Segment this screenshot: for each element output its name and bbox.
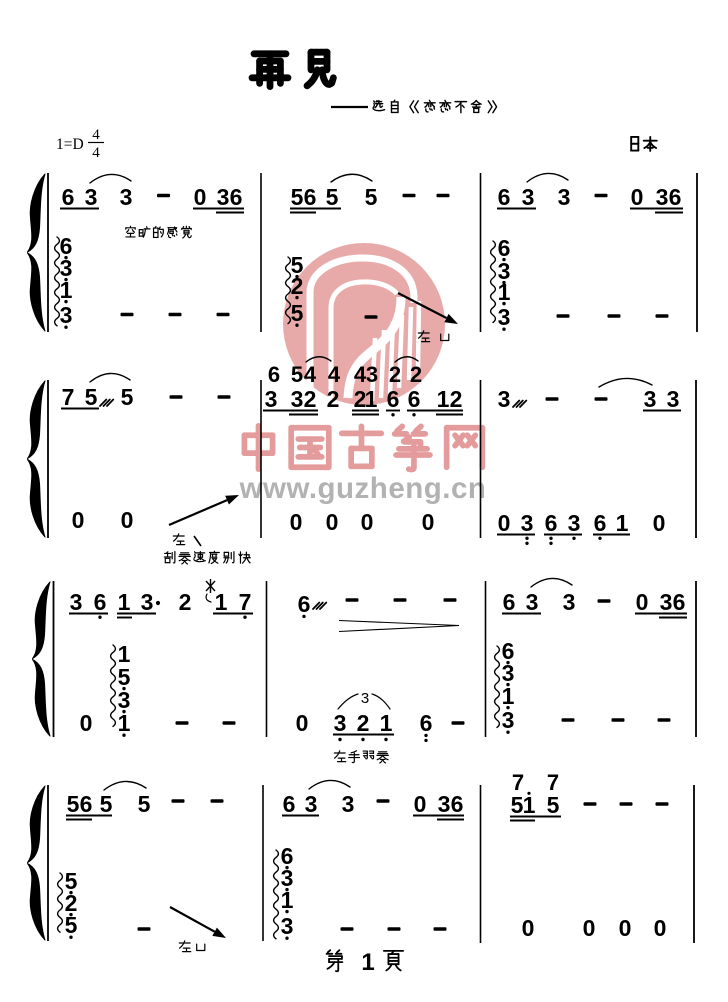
svg-text:3: 3 [141,589,154,615]
svg-text:6: 6 [673,589,686,615]
svg-text:3: 3 [660,589,673,615]
svg-text:5: 5 [67,791,80,817]
svg-text:6: 6 [298,591,311,617]
svg-text:0: 0 [422,509,435,535]
svg-text:0: 0 [72,507,85,533]
svg-text:1: 1 [502,683,515,709]
svg-text:3: 3 [120,184,133,210]
svg-text:3: 3 [644,386,657,412]
svg-text:3: 3 [521,510,534,536]
svg-text:0: 0 [583,915,596,941]
svg-text:3: 3 [563,589,576,615]
svg-text:5: 5 [121,384,134,410]
svg-text:1: 1 [437,386,450,412]
svg-text:1: 1 [616,510,629,536]
svg-text:1: 1 [60,277,73,303]
svg-text:0: 0 [361,509,374,535]
svg-text:0: 0 [194,184,207,210]
svg-text:5: 5 [291,184,304,210]
svg-text:2: 2 [357,710,370,736]
svg-text:3: 3 [498,386,511,412]
svg-text:1: 1 [523,792,536,818]
svg-text:3: 3 [568,510,581,536]
svg-text:3: 3 [305,791,318,817]
svg-text:5: 5 [365,184,378,210]
svg-text:5: 5 [85,384,98,410]
svg-text:6: 6 [387,386,400,412]
svg-text:6: 6 [594,510,607,536]
svg-text:5: 5 [138,791,151,817]
svg-text:0: 0 [414,791,427,817]
svg-text:6: 6 [283,791,296,817]
svg-text:4: 4 [92,145,100,161]
svg-text:5: 5 [547,792,560,818]
svg-text:6: 6 [503,589,516,615]
svg-text:3: 3 [438,791,451,817]
svg-text:5: 5 [291,362,303,387]
svg-text:1: 1 [281,887,294,913]
svg-text:3: 3 [558,184,571,210]
svg-text:0: 0 [619,915,632,941]
svg-text:3: 3 [366,362,378,387]
svg-text:5: 5 [291,300,304,326]
svg-text:1=D: 1=D [56,136,84,153]
svg-text:2: 2 [410,362,422,387]
svg-text:www.guzheng.cn: www.guzheng.cn [239,472,487,505]
svg-text:3: 3 [342,791,355,817]
svg-text:3: 3 [526,589,539,615]
svg-text:4: 4 [92,127,100,143]
svg-text:6: 6 [451,791,464,817]
svg-text:3: 3 [265,386,278,412]
svg-text:3: 3 [667,386,680,412]
svg-text:6: 6 [420,710,433,736]
svg-text:2: 2 [450,386,463,412]
svg-text:1: 1 [118,710,131,736]
svg-text:6: 6 [669,184,682,210]
svg-text:0: 0 [80,710,93,736]
svg-text:3: 3 [502,707,515,733]
svg-text:0: 0 [498,510,511,536]
svg-text:4: 4 [328,362,341,387]
svg-text:5: 5 [100,791,113,817]
svg-text:3: 3 [85,184,98,210]
svg-text:3: 3 [291,386,304,412]
svg-text:1: 1 [498,279,511,305]
svg-text:2: 2 [291,273,304,299]
svg-text:5: 5 [326,184,339,210]
svg-text:3: 3 [281,913,294,939]
svg-text:1: 1 [380,710,393,736]
svg-text:3: 3 [361,690,369,707]
svg-text:0: 0 [653,510,666,536]
svg-text:2: 2 [304,386,317,412]
svg-text:6: 6 [80,791,93,817]
svg-text:6: 6 [545,510,558,536]
svg-text:0: 0 [121,507,134,533]
svg-text:6: 6 [304,184,317,210]
svg-text:3: 3 [70,589,83,615]
svg-text:7: 7 [62,384,75,410]
svg-text:5: 5 [65,912,78,938]
svg-text:0: 0 [326,509,339,535]
svg-text:6: 6 [230,184,243,210]
svg-text:6: 6 [62,184,75,210]
svg-text:7: 7 [239,589,252,615]
svg-text:0: 0 [654,915,667,941]
svg-text:3: 3 [60,302,73,328]
svg-text:1: 1 [361,949,374,976]
svg-text:1: 1 [215,589,228,615]
svg-text:6: 6 [268,362,280,387]
svg-text:3: 3 [498,304,511,330]
svg-text:0: 0 [631,184,644,210]
svg-text:3: 3 [334,710,347,736]
svg-text:6: 6 [498,184,511,210]
svg-text:6: 6 [408,386,421,412]
svg-text:4: 4 [304,362,317,387]
svg-text:3: 3 [522,184,535,210]
svg-text:0: 0 [636,589,649,615]
svg-text:3: 3 [217,184,230,210]
svg-text:1: 1 [365,386,378,412]
svg-text:2: 2 [327,386,340,412]
svg-text:3: 3 [656,184,669,210]
svg-text:2: 2 [389,362,401,387]
svg-text:1: 1 [118,589,131,615]
svg-text:0: 0 [522,915,535,941]
svg-text:2: 2 [179,589,192,615]
svg-text:0: 0 [296,710,309,736]
svg-text:0: 0 [290,509,303,535]
svg-text:6: 6 [94,589,107,615]
